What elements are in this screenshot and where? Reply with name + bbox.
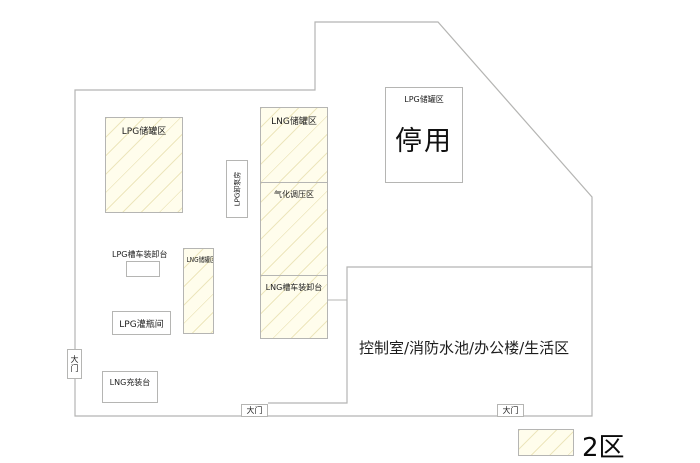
- gate-left: 大门: [67, 349, 82, 379]
- zone-lpg-pump-room-label: LPG卸泵房: [232, 172, 242, 207]
- zone-lpg-bottle-room: LPG灌瓶间: [112, 311, 171, 335]
- zone-lng-tank-small: LNG储罐区: [183, 248, 214, 334]
- zone-lpg-storage-disabled: LPG储罐区 停用: [385, 87, 463, 183]
- disabled-status-text: 停用: [386, 119, 462, 158]
- zone-lpg-storage-disabled-label: LPG储罐区: [386, 88, 462, 105]
- gate-left-label: 大门: [69, 355, 80, 373]
- zone-lng-truck-platform: LNG槽车装卸台: [260, 275, 328, 339]
- zone-lpg-storage-left-label: LPG储罐区: [106, 118, 182, 137]
- legend-zone2-swatch: [518, 429, 574, 456]
- gate-bottom-left-label: 大门: [247, 405, 263, 416]
- zone-lpg-truck-platform-box: [126, 261, 160, 277]
- gate-bottom-left: 大门: [241, 404, 268, 417]
- zone-lpg-pump-room: LPG卸泵房: [226, 160, 248, 218]
- zone-gasification-label: 气化调压区: [261, 183, 327, 200]
- zone-lng-storage-label: LNG储罐区: [261, 108, 327, 127]
- zone-lng-filling-platform: LNG充装台: [102, 371, 158, 403]
- site-plan-canvas: LPG储罐区 LPG卸泵房 LNG储罐区 气化调压区 LNG槽车装卸台 LPG储…: [0, 0, 700, 463]
- zone-lpg-storage-left: LPG储罐区: [105, 117, 183, 213]
- zone-gasification: 气化调压区: [260, 182, 328, 276]
- gate-bottom-right: 大门: [497, 404, 524, 417]
- zone-lng-storage: LNG储罐区: [260, 107, 328, 183]
- zone-lpg-truck-platform-label: LPG槽车装卸台: [112, 249, 167, 260]
- zone-lng-tank-small-label: LNG储罐区: [187, 249, 211, 265]
- legend-zone2-label: 2区: [582, 427, 625, 463]
- zone-lpg-bottle-room-label: LPG灌瓶间: [119, 317, 163, 330]
- gate-bottom-right-label: 大门: [503, 405, 519, 416]
- zone-lng-filling-platform-label: LNG充装台: [103, 372, 157, 388]
- control-area-label: 控制室/消防水池/办公楼/生活区: [359, 337, 569, 358]
- zone-lng-truck-platform-label: LNG槽车装卸台: [261, 276, 327, 293]
